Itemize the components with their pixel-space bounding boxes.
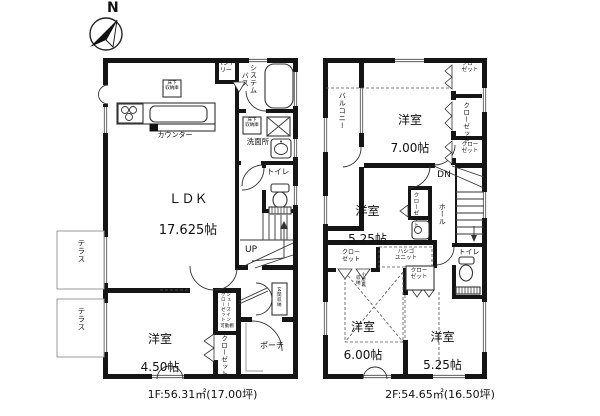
floorplan-linework — [0, 0, 600, 416]
toilet-icon-1f — [271, 184, 289, 208]
ldk-size: 17.625帖 — [138, 223, 238, 238]
washroom-label: 洗面所 — [240, 138, 276, 147]
closet-label-2f-left: クロー ゼット — [330, 249, 372, 263]
porch-label: ポーチ — [252, 341, 292, 350]
toilet-label-1f: トイレ — [264, 168, 292, 177]
bedroom-700-name: 洋室 — [370, 113, 450, 127]
bedroom-450-name: 洋室 — [120, 332, 200, 346]
entry-step-line — [239, 288, 268, 304]
bedroom-525b-size: 5.25帖 — [405, 358, 480, 372]
bedroom-450-label: 洋室 4.50帖 — [120, 318, 200, 389]
closet-label-2f-bottom: クロー ゼット — [406, 268, 432, 281]
bedroom-700-size: 7.00帖 — [370, 141, 450, 155]
ldk-room-label: ＬＤＫ 17.625帖 — [138, 177, 238, 254]
entrance-storage-label: 玄関収納 — [276, 287, 281, 307]
compass-icon — [90, 18, 122, 50]
attic-storage-label: 小屋裏 収納 — [355, 272, 366, 287]
floor1-area-caption: 1F:56.31㎡(17.00坪) — [95, 389, 310, 402]
bedroom-525a-size: 5.25帖 — [330, 232, 405, 246]
closet-label-2f-right-mid: クローゼット — [461, 102, 469, 144]
kitchen-counter — [117, 103, 215, 131]
hall-label: ホール — [438, 203, 446, 226]
bedroom-600-name: 洋室 — [323, 320, 403, 334]
bath-label: システム バス — [241, 64, 258, 94]
stairs-down-label: DN — [432, 170, 456, 181]
sink-icon — [150, 106, 207, 122]
underfloor-storage-label-1: 床下 収納庫 — [163, 81, 181, 92]
bedroom-600-size: 6.00帖 — [323, 348, 403, 362]
counter-label: カウンター — [145, 131, 205, 139]
ldk-name: ＬＤＫ — [138, 192, 238, 207]
bedroom-600-label: 洋室 6.00帖 — [323, 306, 403, 377]
terrace-label-1: テラス — [76, 239, 85, 263]
terrace-label-2: テラス — [76, 307, 85, 331]
stairs-up-label: UP — [240, 245, 262, 256]
compass-north-label: N — [107, 0, 119, 17]
bedroom-450-size: 4.50帖 — [120, 360, 200, 374]
movable-shelf-label: 可動棚 — [215, 324, 239, 329]
closet-label-1f: クローゼット — [219, 335, 227, 377]
pantry-label: パント リー — [214, 60, 238, 74]
toilet-label-2f: トイレ — [455, 248, 483, 256]
stairs-1f — [240, 213, 293, 268]
closet-label-2f-top-right: クロー ゼット — [456, 61, 484, 74]
bathtub-icon — [265, 64, 293, 108]
underfloor-storage-label-2: 床下 収納庫 — [243, 118, 261, 129]
louver-window-1f — [269, 207, 291, 214]
floorplan-page: N パント リー システム バス 床下 収納庫 カウンター 床下 収納庫 洗面所… — [0, 0, 600, 416]
bedroom-700-label: 洋室 7.00帖 — [370, 99, 450, 170]
closet-label-2f-mid: クローゼット — [412, 192, 418, 228]
balcony-label: バルコニー — [338, 92, 346, 130]
shoes-in-closet-label: シューズイン クローゼット — [220, 292, 231, 322]
louver-window-2f — [456, 287, 480, 294]
bedroom-525a-name: 洋室 — [330, 204, 405, 218]
closet-label-2f-right-low: クロー ゼット — [456, 142, 484, 155]
floor2-area-caption: 2F:54.65㎡(16.50坪) — [340, 389, 540, 402]
washer-icon — [267, 117, 290, 136]
bedroom-525b-name: 洋室 — [405, 330, 480, 344]
toilet-icon-2f — [459, 257, 474, 281]
bedroom-525b-label: 洋室 5.25帖 — [405, 316, 480, 387]
ladder-unit-label: ハシゴ ユニット — [381, 249, 431, 262]
